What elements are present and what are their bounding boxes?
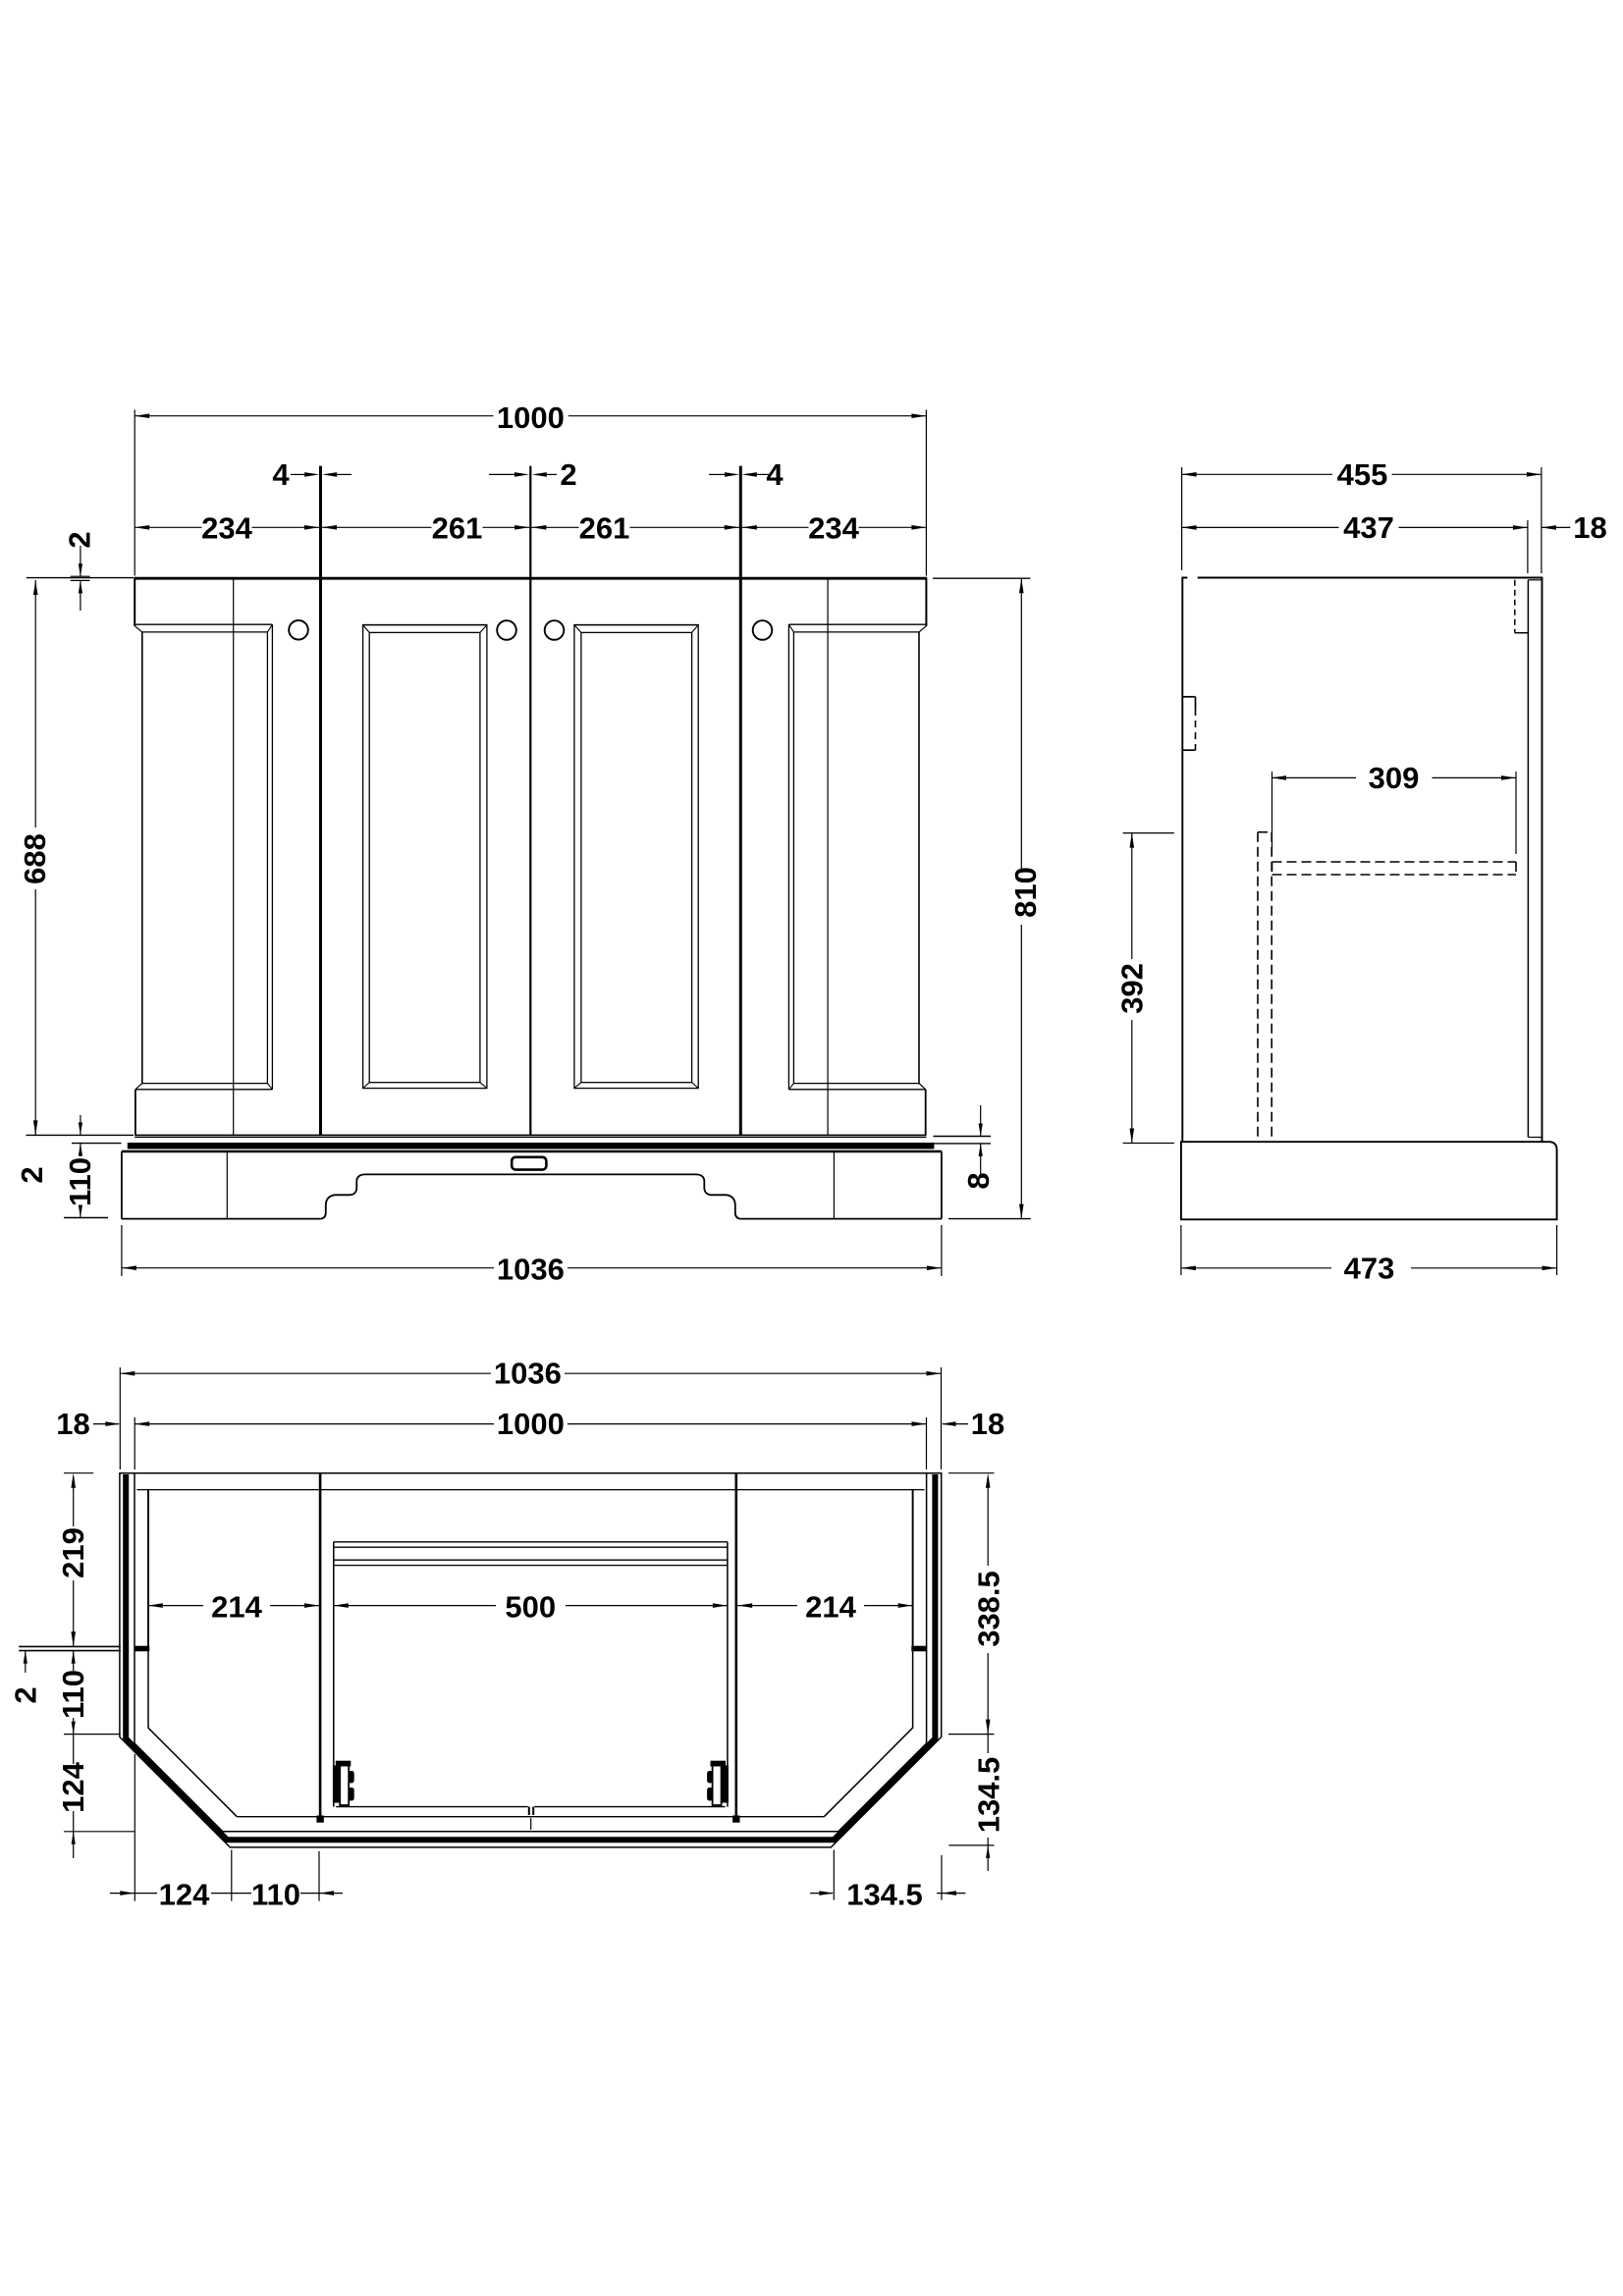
svg-text:2: 2 [15, 1166, 49, 1183]
svg-text:214: 214 [211, 1590, 262, 1625]
svg-text:309: 309 [1369, 761, 1420, 795]
svg-text:18: 18 [56, 1407, 89, 1441]
svg-text:473: 473 [1344, 1251, 1395, 1285]
svg-text:338.5: 338.5 [972, 1571, 1006, 1647]
svg-text:219: 219 [56, 1527, 90, 1578]
svg-text:1000: 1000 [497, 400, 565, 435]
svg-text:2: 2 [9, 1686, 43, 1703]
svg-text:110: 110 [56, 1670, 90, 1719]
svg-text:437: 437 [1343, 510, 1394, 545]
svg-text:810: 810 [1008, 867, 1043, 918]
svg-text:261: 261 [432, 511, 483, 546]
svg-text:214: 214 [805, 1590, 856, 1625]
svg-text:110: 110 [251, 1878, 300, 1912]
svg-text:392: 392 [1115, 963, 1150, 1014]
svg-text:234: 234 [808, 511, 859, 546]
svg-text:4: 4 [272, 457, 290, 492]
svg-text:4: 4 [766, 457, 784, 492]
svg-text:2: 2 [560, 457, 576, 492]
svg-text:8: 8 [961, 1172, 996, 1189]
svg-text:2: 2 [63, 531, 97, 548]
svg-text:110: 110 [63, 1157, 97, 1206]
svg-text:18: 18 [1573, 510, 1606, 545]
svg-text:234: 234 [201, 511, 252, 546]
svg-text:124: 124 [56, 1761, 90, 1812]
svg-text:455: 455 [1337, 457, 1388, 492]
svg-text:500: 500 [505, 1590, 556, 1625]
svg-text:1000: 1000 [497, 1407, 565, 1441]
svg-text:124: 124 [159, 1878, 210, 1912]
svg-text:18: 18 [971, 1407, 1004, 1441]
svg-text:134.5: 134.5 [972, 1757, 1006, 1834]
svg-text:261: 261 [579, 511, 630, 546]
svg-text:1036: 1036 [494, 1357, 562, 1391]
svg-text:1036: 1036 [497, 1253, 565, 1287]
svg-text:134.5: 134.5 [846, 1878, 923, 1912]
svg-text:688: 688 [18, 833, 52, 884]
